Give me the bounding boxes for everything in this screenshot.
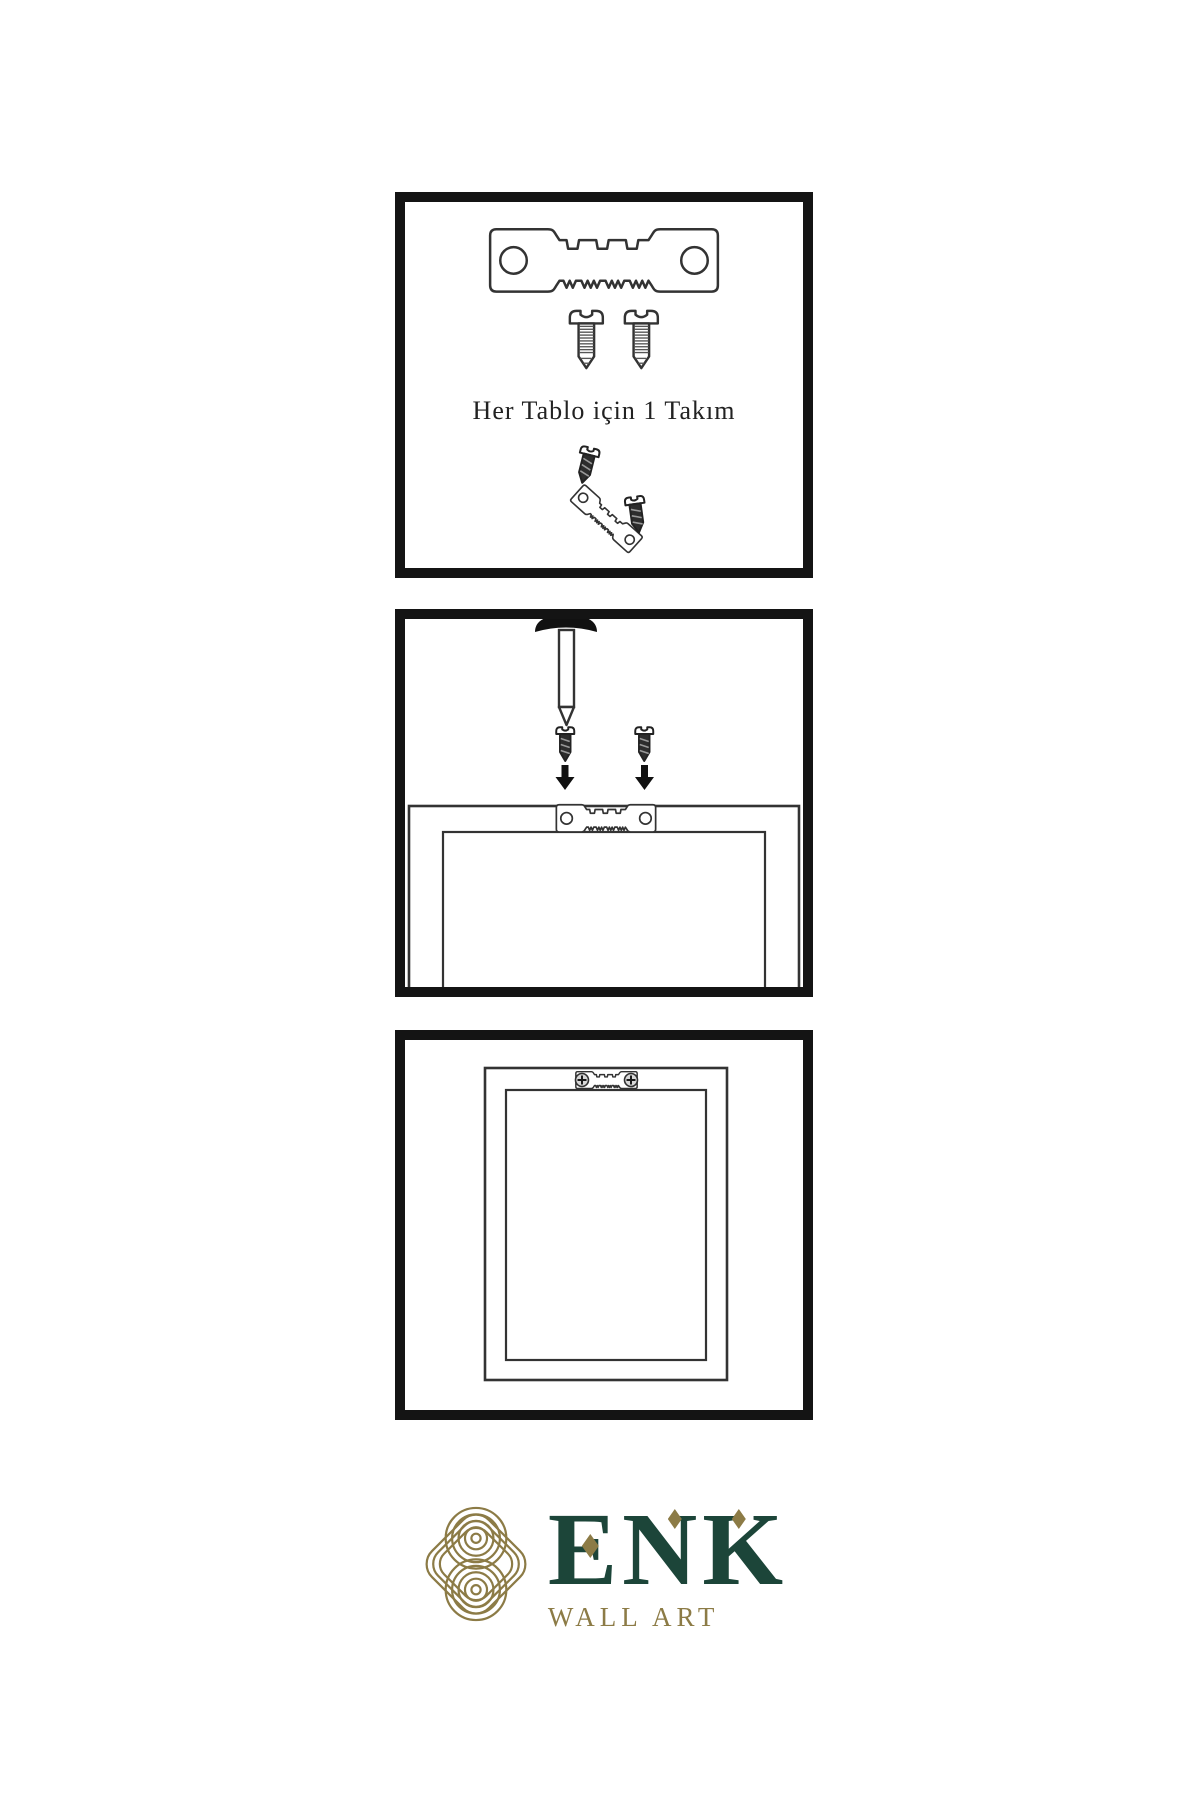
phillips-screw-head-icon [576, 1074, 589, 1087]
brand-name: ENK [548, 1508, 788, 1592]
sawtooth-hanger-icon [490, 229, 718, 291]
hardware-kit-graphic [405, 202, 803, 568]
hung-frame-graphic [405, 1040, 803, 1410]
sawtooth-hanger-icon [556, 805, 655, 832]
brand-logo: ENK WALL ART [0, 1492, 1200, 1633]
frame-front-outline [485, 1068, 727, 1380]
installation-graphic [405, 619, 803, 987]
step-panel-1: Her Tablo için 1 Takım [395, 192, 813, 578]
phillips-screw-head-icon [625, 1074, 638, 1087]
arrow-down-icon [556, 765, 575, 790]
kit-caption: Her Tablo için 1 Takım [405, 396, 803, 426]
screw-icon [625, 311, 658, 368]
celtic-knot-icon [412, 1496, 540, 1632]
screw-dark-icon [556, 727, 574, 761]
logo-text: ENK WALL ART [548, 1508, 788, 1633]
screw-icon [570, 311, 603, 368]
step-panel-2 [395, 609, 813, 997]
instruction-sheet: Her Tablo için 1 Takım [0, 0, 1200, 1800]
screw-dark-icon [573, 446, 600, 486]
wall-nail-icon [535, 619, 597, 725]
frame-back-outline [409, 806, 799, 987]
arrow-down-icon [635, 765, 654, 790]
screw-dark-icon [635, 727, 653, 761]
step-panel-3 [395, 1030, 813, 1420]
